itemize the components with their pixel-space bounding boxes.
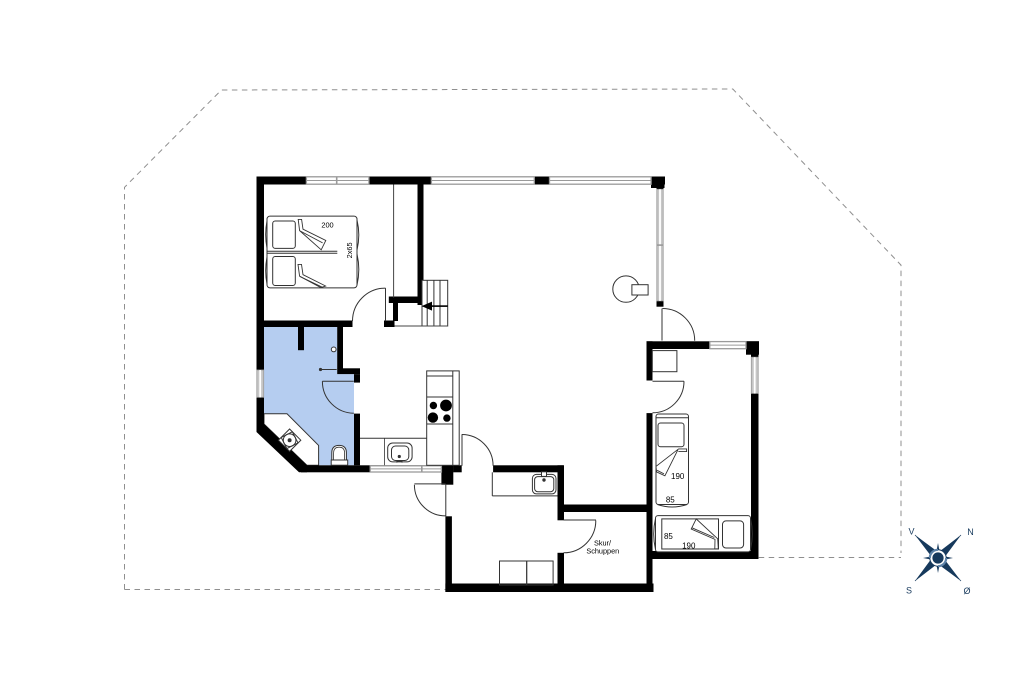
svg-text:200: 200	[321, 220, 333, 229]
svg-text:N: N	[967, 527, 974, 537]
svg-text:190: 190	[671, 472, 685, 481]
svg-text:Ø: Ø	[963, 586, 970, 596]
svg-text:2x65: 2x65	[345, 242, 354, 258]
svg-text:S: S	[906, 586, 912, 596]
svg-text:Schuppen: Schuppen	[586, 547, 619, 556]
svg-text:190: 190	[682, 541, 696, 550]
svg-text:85: 85	[664, 532, 673, 541]
svg-text:85: 85	[666, 495, 675, 504]
svg-text:V: V	[908, 527, 914, 537]
